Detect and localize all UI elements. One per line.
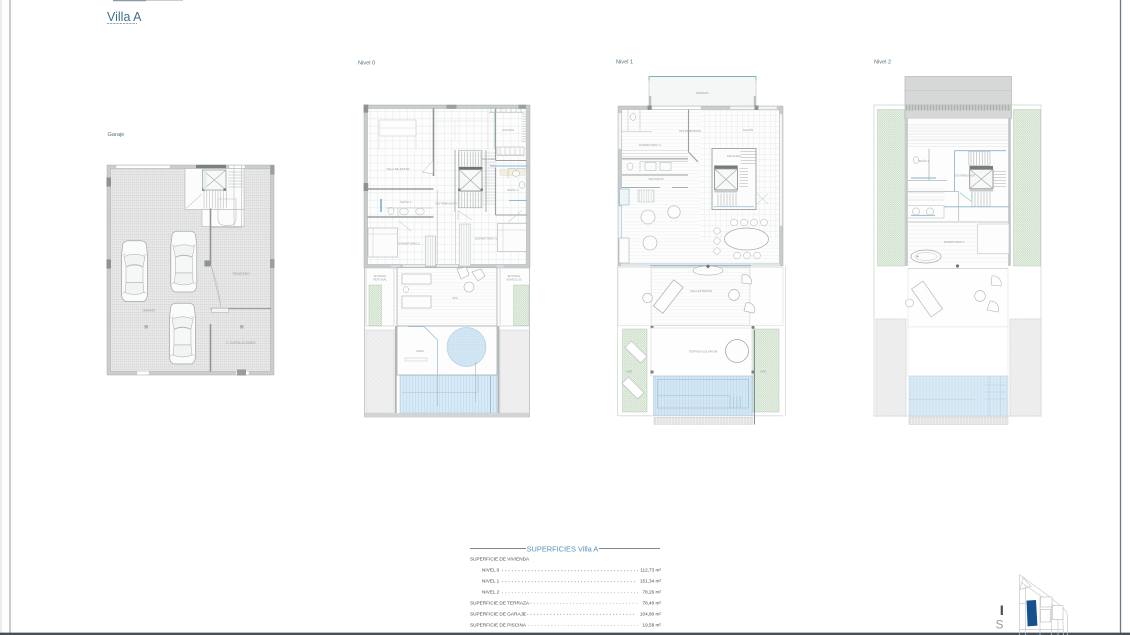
svg-text:PEATONAL: PEATONAL [373,277,387,281]
svg-text:151,34 m²: 151,34 m² [640,579,662,584]
svg-text:NIVEL 2: NIVEL 2 [482,590,500,595]
svg-text:DORMITORIO 2: DORMITORIO 2 [398,242,420,246]
svg-text:ENTRADA: ENTRADA [374,274,387,278]
svg-text:19,58 m²: 19,58 m² [643,623,662,628]
svg-text:SALA DE ESTAR: SALA DE ESTAR [386,167,410,171]
svg-text:VEHÍCULOS: VEHÍCULOS [507,277,522,281]
svg-text:DISTRIBUIDOR: DISTRIBUIDOR [955,174,975,178]
svg-text:DORMITORIO 3: DORMITORIO 3 [475,237,497,241]
svg-text:TERRAZA: TERRAZA [695,91,708,95]
svg-text:BAÑO 3: BAÑO 3 [919,158,930,163]
svg-text:SALÓN: SALÓN [743,127,753,132]
svg-text:COCINA: COCINA [502,128,514,132]
svg-text:SALA EXTERIOR: SALA EXTERIOR [690,289,712,293]
svg-text:BAÑO 2: BAÑO 2 [507,187,518,192]
svg-text:Garaje: Garaje [108,132,125,138]
svg-text:GARAJE: GARAJE [143,309,156,313]
svg-text:DISTRIBUIDOR: DISTRIBUIDOR [679,129,701,133]
svg-text:SUPERFICIE DE GARAJE: SUPERFICIE DE GARAJE [470,611,526,616]
svg-text:ASEO: ASEO [416,349,425,353]
svg-text:NIVEL 1: NIVEL 1 [482,579,500,584]
svg-text:ESCALERA: ESCALERA [482,157,497,161]
svg-text:BAÑO 1: BAÑO 1 [400,199,411,204]
svg-text:Nivel 2: Nivel 2 [874,60,891,66]
svg-text:78,26 m²: 78,26 m² [643,590,662,595]
svg-text:ESCALERA: ESCALERA [727,154,741,158]
svg-text:78,40 m²: 78,40 m² [643,600,662,605]
svg-text:DORMITORIO 4: DORMITORIO 4 [639,143,661,147]
svg-text:S: S [996,618,1004,632]
svg-text:112,73 m²: 112,73 m² [640,568,661,573]
svg-text:C. INSTALACIONES: C. INSTALACIONES [226,341,255,345]
svg-text:Nivel 1: Nivel 1 [616,60,633,66]
svg-text:JARD.: JARD. [760,371,767,374]
svg-text:ENTRADA: ENTRADA [508,274,521,278]
svg-text:VESTIDOR: VESTIDOR [648,177,664,181]
svg-text:SPA: SPA [452,296,458,300]
svg-text:DORMITORIO 1: DORMITORIO 1 [944,240,965,244]
svg-text:SUPERFICIE DE TERRAZA: SUPERFICIE DE TERRAZA [470,600,530,605]
svg-text:SUPERFICIE DE VIVIENDA: SUPERFICIE DE VIVIENDA [470,556,530,561]
svg-text:NIVEL 0: NIVEL 0 [482,568,500,573]
svg-text:SUPERFICIES Villa A: SUPERFICIES Villa A [527,545,599,554]
svg-text:TRASTERO: TRASTERO [232,272,250,276]
svg-text:TERRAZA SOLÁRIUM: TERRAZA SOLÁRIUM [689,350,718,354]
svg-text:SUPERFICIE DE PISCINA: SUPERFICIE DE PISCINA [470,623,527,628]
svg-text:Nivel 0: Nivel 0 [358,61,375,67]
svg-text:Villa A: Villa A [107,10,142,24]
svg-text:JARD.: JARD. [626,371,633,374]
svg-text:DISTRIBUIDOR: DISTRIBUIDOR [435,202,457,206]
svg-text:104,80 m²: 104,80 m² [640,611,662,616]
